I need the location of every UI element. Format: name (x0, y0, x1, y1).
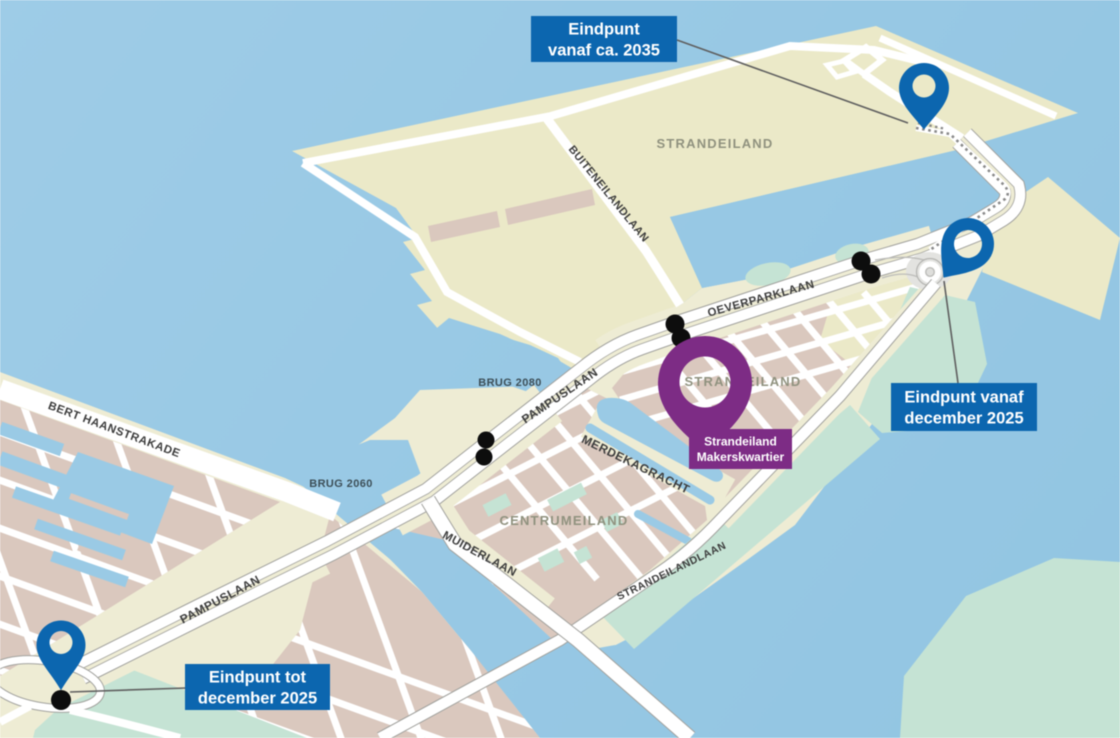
svg-text:BRUG 2080: BRUG 2080 (478, 377, 542, 389)
svg-text:Eindpunt: Eindpunt (568, 21, 640, 39)
svg-text:Strandeiland: Strandeiland (704, 435, 777, 449)
svg-text:STRANDEILAND: STRANDEILAND (657, 136, 774, 151)
svg-text:Makerskwartier: Makerskwartier (697, 450, 785, 464)
svg-text:Eindpunt vanaf: Eindpunt vanaf (904, 389, 1024, 407)
svg-text:BRUG 2060: BRUG 2060 (309, 478, 373, 490)
svg-text:december 2025: december 2025 (904, 409, 1023, 427)
svg-text:Eindpunt tot: Eindpunt tot (209, 669, 307, 687)
svg-text:vanaf ca. 2035: vanaf ca. 2035 (548, 41, 660, 59)
svg-text:CENTRUMEILAND: CENTRUMEILAND (500, 513, 629, 528)
svg-text:december 2025: december 2025 (198, 689, 317, 707)
